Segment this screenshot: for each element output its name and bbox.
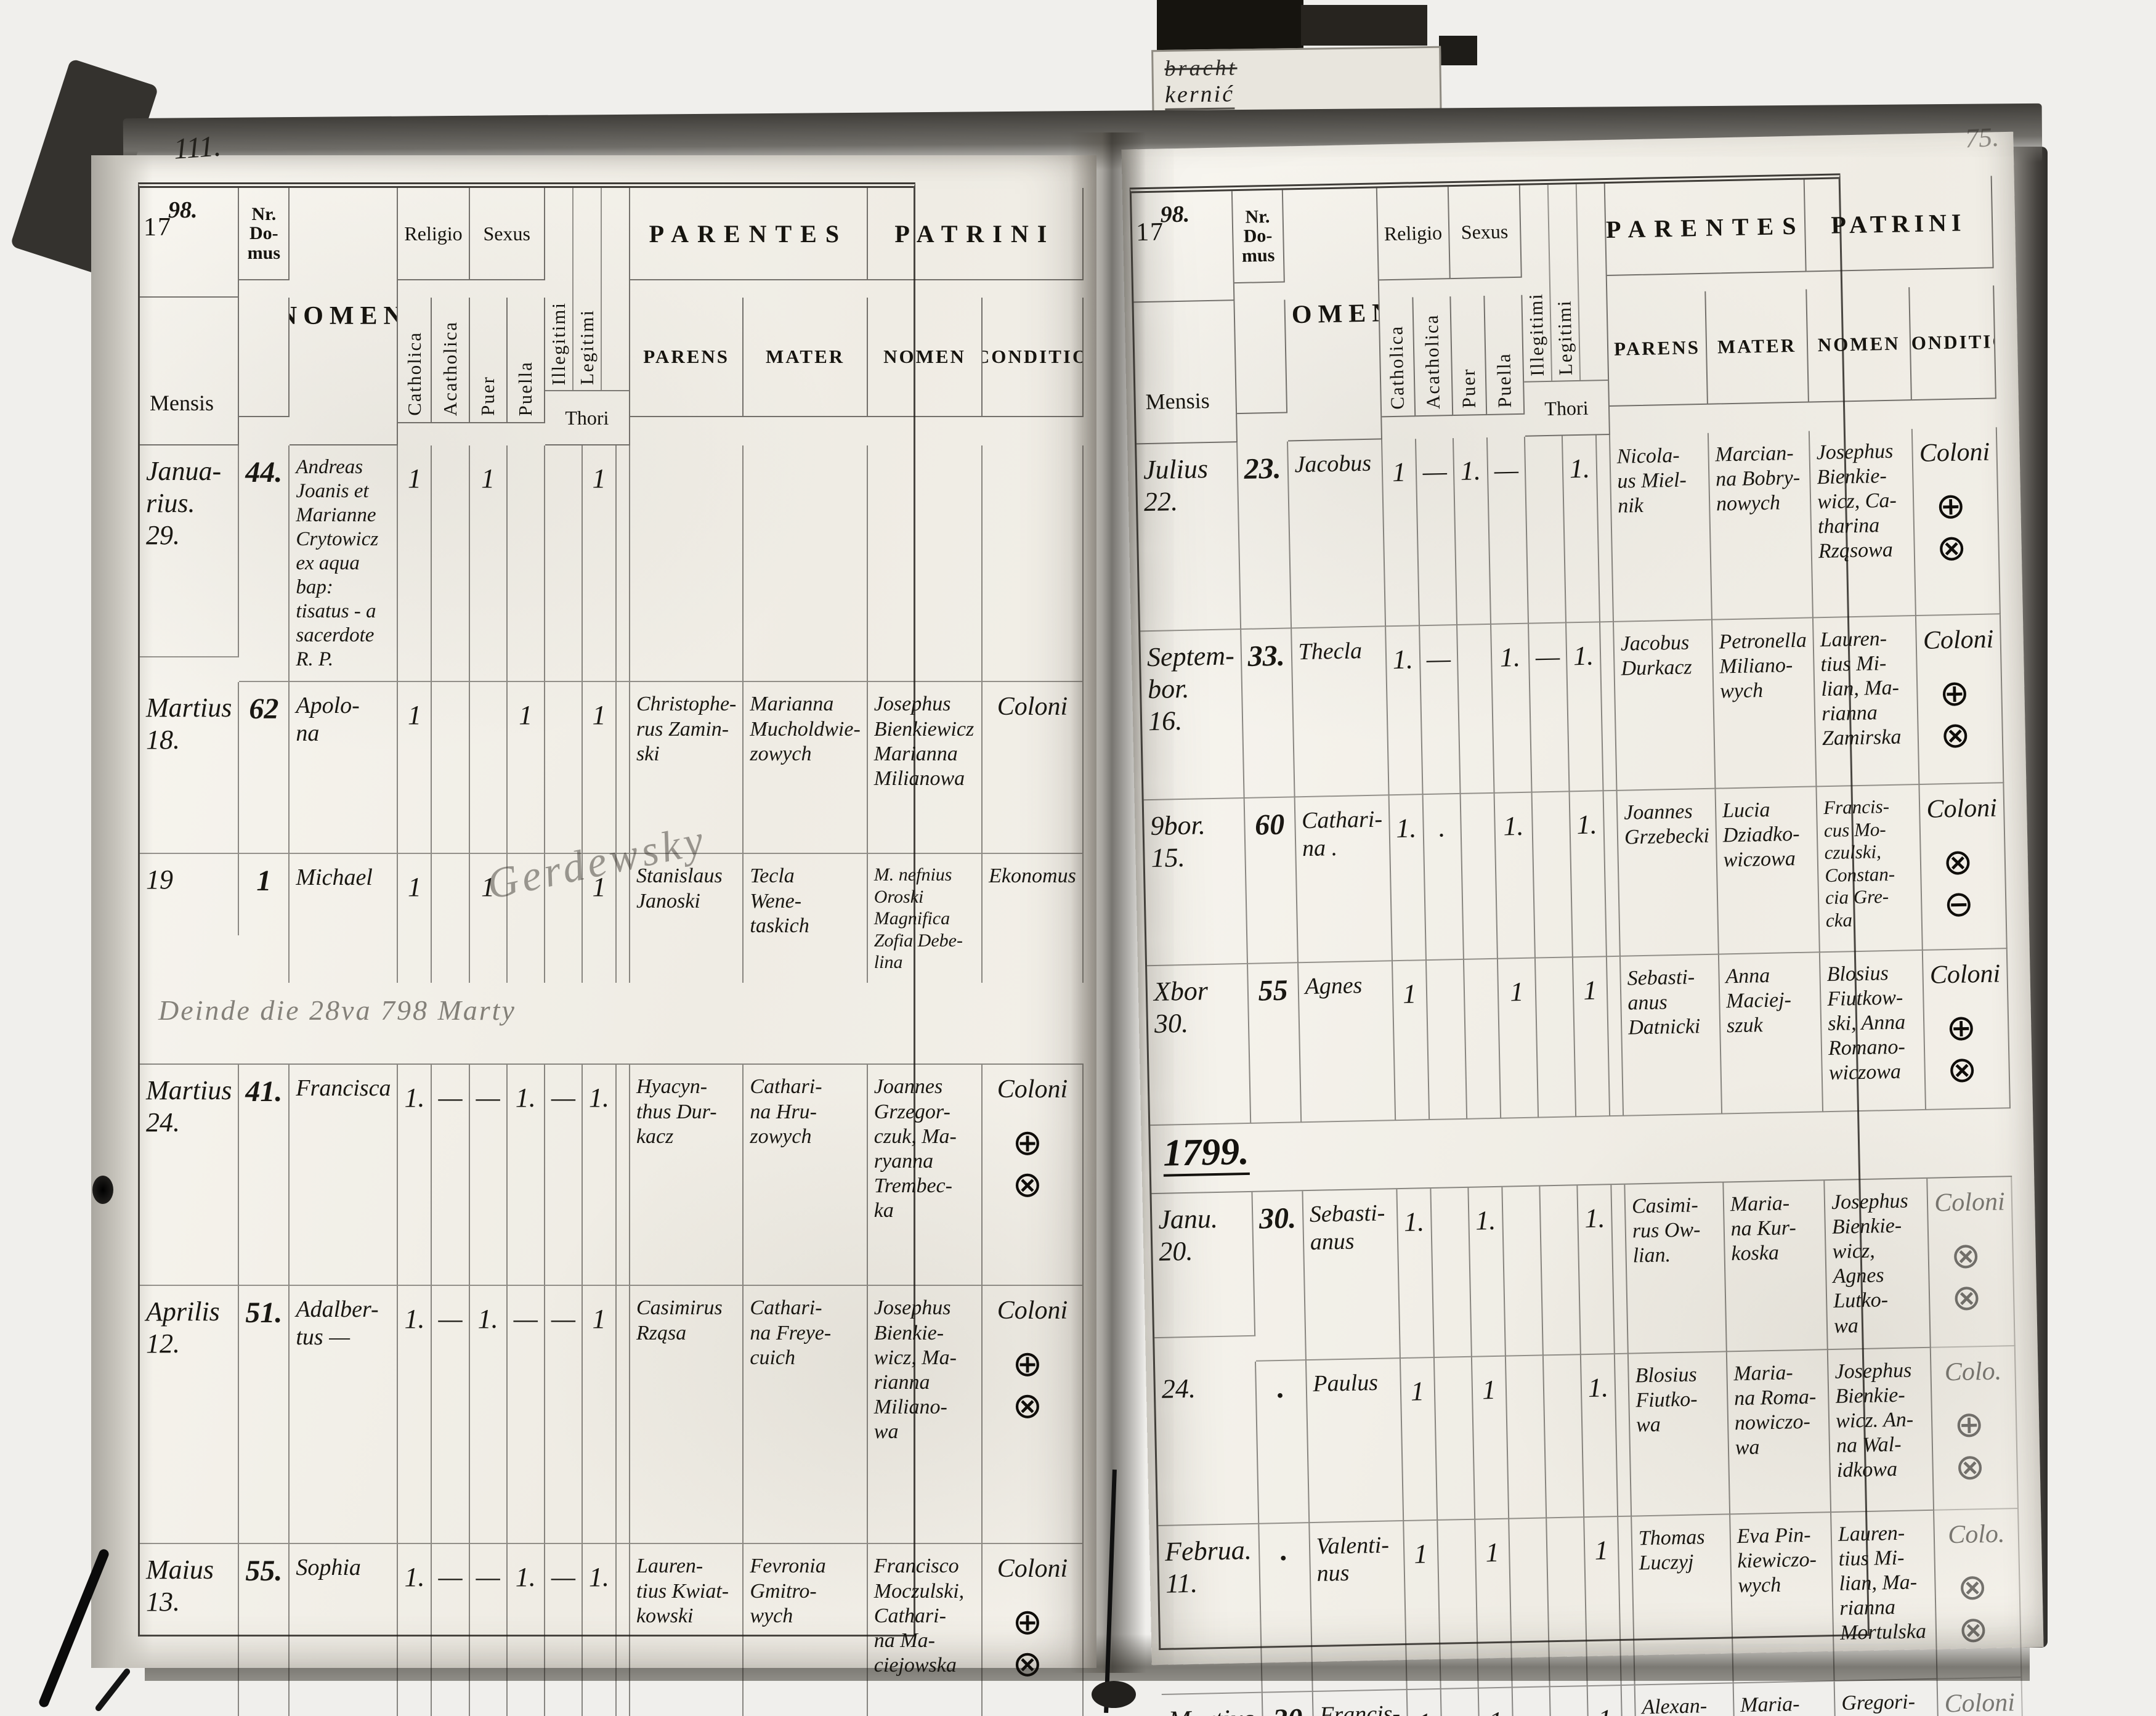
cell-nomen: Michael xyxy=(290,854,398,983)
cell-nomen: Cathari- na . xyxy=(1295,795,1392,963)
header-thori: Thori xyxy=(1524,380,1609,436)
cell-mensis: Julius 22. xyxy=(1137,442,1241,632)
cell-mater: Petronella Miliano- wych xyxy=(1712,618,1817,789)
header-nr-domus: Nr. Do- mus xyxy=(239,188,290,280)
cell-acatholica xyxy=(432,682,469,854)
cell-parens xyxy=(630,445,744,682)
header-illegitimi: Illegitimi xyxy=(545,188,573,390)
witness-marks: ⊗ ⊗ xyxy=(1935,1234,2007,1319)
header-puella: Puella xyxy=(1485,295,1525,415)
cell-conditio: Ekonomus xyxy=(983,854,1084,983)
cell-legitimi: 1. xyxy=(1581,1354,1618,1518)
cell-patrini-nomen: Gregori- us Roma- nowicz, Anna G'Dziadka xyxy=(1835,1679,1942,1716)
cell-catholica: 1 xyxy=(398,445,432,682)
cell-mensis: Xbor 30. xyxy=(1147,964,1251,1126)
cell-spacer xyxy=(617,1286,630,1544)
book-gutter-shadow xyxy=(1071,132,1146,1673)
header-nr-blank xyxy=(1234,299,1287,414)
cell-puer: 1 xyxy=(1475,1519,1512,1688)
cell-catholica: 1. xyxy=(398,1065,432,1286)
cell-parens: Nicola- us Miel- nik xyxy=(1610,433,1712,622)
year-written: 98. xyxy=(168,197,198,224)
header-mater: MATER xyxy=(744,298,867,417)
cell-illegitimi xyxy=(545,445,583,682)
cell-catholica: 1 xyxy=(398,854,432,983)
cell-parens: Jacobus Durkacz xyxy=(1614,620,1716,791)
cell-puer xyxy=(1464,959,1501,1120)
left-register-table: 17 98. Nr. Do- mus NOMEN Religio Sexus I… xyxy=(138,182,912,1629)
tab-note-line2: kernić xyxy=(1165,80,1235,110)
cell-patrini-nomen: M. nefnius Oroski Magnifica Zofia Debe- … xyxy=(868,854,983,983)
cell-nr: 1 xyxy=(239,854,290,983)
header-thori-group: Illegitimi Legitimi Thori xyxy=(1520,184,1610,437)
cell-conditio: Coloni⊕ ⊗ xyxy=(1913,427,2000,616)
right-register-table: 17 98. Nr. Do- mus NOMEN Religio Sexus I… xyxy=(1130,173,1866,1643)
cell-mater: Maria- na Kewa Jozefek xyxy=(1733,1681,1839,1716)
cell-puella: 1 xyxy=(508,682,545,854)
header-puer: Puer xyxy=(470,298,508,423)
cell-nr: 55. xyxy=(239,1544,290,1716)
cell-puella: 1. xyxy=(1491,624,1533,794)
cell-mater: Lucia Dziadko- wiczowa xyxy=(1716,787,1820,954)
header-patrini-nomen: NOMEN xyxy=(1807,287,1912,402)
header-catholica: Catholica xyxy=(1379,297,1416,417)
cell-illegitimi xyxy=(1536,958,1576,1118)
cell-mater: Maria- na Roma- nowiczo- wa xyxy=(1727,1350,1832,1515)
cell-mensis: 9bor. 15. xyxy=(1144,799,1248,966)
cell-puer xyxy=(1457,625,1494,794)
witness-marks: ⊕ ⊗ xyxy=(989,1343,1076,1427)
cell-legitimi: 1 xyxy=(1584,1517,1621,1686)
cell-legitimi: 1. xyxy=(583,1065,617,1286)
cell-catholica: 1. xyxy=(398,1544,432,1716)
cell-legitimi: 1 xyxy=(1573,957,1610,1117)
cell-nomen: Apolo- na xyxy=(290,682,398,854)
cell-legitimi: 1 xyxy=(1588,1686,1626,1716)
cell-catholica: 1 xyxy=(1382,439,1420,627)
cell-legitimi: 1. xyxy=(1570,791,1607,958)
cell-illegitimi: — xyxy=(545,1544,583,1716)
cell-parens: Joannes Grzebecki xyxy=(1618,789,1719,957)
cell-nr: . xyxy=(1259,1523,1313,1693)
header-sexus: Sexus xyxy=(470,188,545,280)
page-number-right: 75. xyxy=(1964,121,2000,155)
cell-mater: Eva Pin- kiewiczo- wych xyxy=(1730,1513,1835,1683)
cell-parens: Lauren- tius Kwiat- kowski xyxy=(630,1544,744,1716)
cell-nomen: Sophia xyxy=(290,1544,398,1716)
cell-catholica: 1. xyxy=(1397,1189,1435,1359)
cell-legitimi: 1 xyxy=(583,445,617,682)
cell-catholica: 1 xyxy=(398,682,432,854)
cell-acatholica: . xyxy=(1423,794,1464,961)
header-thori-spacer xyxy=(602,188,629,390)
cell-mensis: 19 xyxy=(140,854,239,935)
interline-note: Deinde die 28va 798 Marty xyxy=(140,983,1084,1065)
cell-patrini-nomen: Josephus Bienkie- wicz, Agnes Lutko- wa xyxy=(1825,1179,1931,1350)
cell-nr: 62 xyxy=(239,682,290,854)
cell-legitimi: 1. xyxy=(1563,435,1600,623)
cell-puer: 1 xyxy=(470,445,508,682)
cell-spacer xyxy=(617,445,630,682)
cell-patrini-nomen: Josephus Bienkiewicz Marianna Milianowa xyxy=(868,682,983,854)
cell-nomen: Jacobus xyxy=(1288,439,1386,628)
header-thori-group: Illegitimi Legitimi Thori xyxy=(545,188,630,445)
cell-nr: 55 xyxy=(1248,963,1302,1124)
cell-nomen: Francisca xyxy=(290,1065,398,1286)
cell-acatholica: — xyxy=(432,1544,469,1716)
cell-nomen: Andreas Joanis et Marianne Crytowicz ex … xyxy=(290,445,398,682)
cell-nr: . xyxy=(1256,1360,1310,1524)
cell-illegitimi xyxy=(1540,1185,1581,1356)
header-nr-blank xyxy=(239,298,290,417)
cell-mensis: Martius 4 xyxy=(1162,1693,1267,1716)
header-religio: Religio xyxy=(1377,187,1450,280)
cell-mater: Cathari- na Hru- zowych xyxy=(744,1065,867,1286)
cell-nomen: Thecla xyxy=(1292,627,1389,797)
cell-illegitimi xyxy=(1532,792,1573,958)
cell-nr: 60 xyxy=(1244,797,1298,964)
left-page: Gerdewsky 17 98. Nr. Do- mus NOMEN Relig… xyxy=(91,155,1096,1668)
cell-parens: Casimirus Rząsa xyxy=(630,1286,744,1544)
bookmark-tab-dark-2 xyxy=(1301,5,1427,46)
cell-conditio: Coloni⊕ ⊗ xyxy=(983,1286,1084,1544)
cell-puer: — xyxy=(470,1544,508,1716)
cell-mensis: Aprilis 12. xyxy=(140,1286,239,1544)
witness-marks: ⊕ ⊗ xyxy=(1920,484,1992,569)
cell-mater: Tecla Wene- taskich xyxy=(744,854,867,983)
cell-patrini-nomen: Josephus Bienkie- wicz. An- na Wal- idko… xyxy=(1828,1348,1934,1512)
register-scan-photo: bracht kernić 111. 75. Gerdewsky 17 98. … xyxy=(0,0,2156,1716)
cell-catholica: 1 xyxy=(1404,1521,1441,1690)
header-sexus: Sexus xyxy=(1449,185,1522,279)
header-legitimi: Legitimi xyxy=(573,188,602,390)
cell-mater: Maria- na Kur- koska xyxy=(1724,1181,1828,1352)
cell-conditio: Coloni⊗ ⊖ xyxy=(1938,1678,2026,1716)
year-written: 98. xyxy=(1160,201,1189,229)
cell-acatholica: — xyxy=(1416,438,1457,626)
cell-illegitimi: — xyxy=(545,1286,583,1544)
header-thori-spacer xyxy=(1577,184,1608,380)
header-conditio: CONDITIO xyxy=(1910,285,1996,401)
cell-acatholica xyxy=(1435,1357,1475,1520)
header-nomen: NOMEN xyxy=(1283,188,1382,441)
cell-puella: 1. xyxy=(508,1065,545,1286)
cell-puella xyxy=(1506,1356,1547,1519)
header-acatholica: Acatholica xyxy=(1413,296,1453,417)
cell-patrini-nomen: Francisco Moczulski, Cathari- na Ma- cie… xyxy=(868,1544,983,1716)
cell-patrini-nomen: Francis- cus Mo- czulski, Constan- cia G… xyxy=(1817,785,1924,953)
cell-catholica: 1. xyxy=(398,1286,432,1544)
cell-mater: Marcian- na Bobry- nowych xyxy=(1709,431,1814,620)
cell-nomen: Paulus xyxy=(1307,1359,1404,1523)
header-puella: Puella xyxy=(508,298,545,423)
cell-mensis: Martius 24. xyxy=(140,1065,239,1286)
cell-acatholica: — xyxy=(432,1286,469,1544)
cell-legitimi: 1. xyxy=(1566,622,1603,792)
header-puer: Puer xyxy=(1451,296,1487,416)
cell-mater: Marianna Mucholdwie- zowych xyxy=(744,682,867,854)
cell-illegitimi xyxy=(1550,1686,1592,1716)
cell-nomen: Francis- cus xyxy=(1313,1690,1411,1716)
ink-blot xyxy=(92,1176,113,1204)
cell-puella xyxy=(1509,1518,1550,1688)
witness-marks: ⊗ ⊗ xyxy=(1942,1565,2014,1651)
cell-patrini-nomen: Blosius Fiutkow- ski, Anna Romano- wiczo… xyxy=(1820,951,1926,1112)
cell-parens: Hyacyn- thus Dur- kacz xyxy=(630,1065,744,1286)
cell-illegitimi: — xyxy=(545,1065,583,1286)
tab-note-line1: bracht xyxy=(1164,52,1429,81)
binding-thread-knot xyxy=(1092,1681,1136,1708)
cell-patrini-nomen: Joannes Grzegor- czuk, Ma- ryanna Trembe… xyxy=(868,1065,983,1286)
cell-patrini-nomen: Lauren- tius Mi- lian, Ma- rianna Zamirs… xyxy=(1814,616,1920,787)
cell-puer: 1. xyxy=(1469,1187,1506,1357)
witness-marks: ⊕ ⊗ xyxy=(989,1601,1076,1685)
header-acatholica: Acatholica xyxy=(432,298,469,423)
cell-acatholica xyxy=(1427,960,1467,1120)
header-patrini: PATRINI xyxy=(1805,176,1993,272)
cell-parens: Alexan- der Tar- czyndler xyxy=(1635,1683,1738,1716)
cell-spacer xyxy=(617,1065,630,1286)
cell-mensis: Martius 18. xyxy=(140,682,239,854)
right-page: 17 98. Nr. Do- mus NOMEN Religio Sexus I… xyxy=(1121,132,2043,1665)
cell-spacer xyxy=(617,1544,630,1716)
witness-marks: ⊕ ⊗ xyxy=(1924,671,1996,757)
header-illegitimi: Illegitimi xyxy=(1520,185,1552,381)
cell-puella: — xyxy=(508,1286,545,1544)
cell-mensis: Janu. 20. xyxy=(1151,1192,1255,1338)
cell-nr: 33. xyxy=(1241,628,1295,799)
cell-spacer xyxy=(617,682,630,854)
cell-conditio: Colo.⊗ ⊗ xyxy=(1934,1509,2022,1680)
cell-puer: 1. xyxy=(1454,437,1491,625)
cell-puella xyxy=(508,445,545,682)
cell-patrini-nomen: Lauren- tius Mi- lian, Ma- rianna Mortul… xyxy=(1831,1510,1938,1681)
cell-catholica: 1. xyxy=(1389,795,1426,961)
cell-illegitimi xyxy=(545,682,583,854)
cell-patrini-nomen: Josephus Bienkie- wicz, Ca- tharina Rząs… xyxy=(1810,429,1916,618)
header-patrini-nomen: NOMEN xyxy=(868,298,983,417)
margin-pen-stroke-2 xyxy=(94,1667,131,1712)
cell-nr: 23. xyxy=(1238,441,1292,630)
cell-illegitimi: — xyxy=(1529,623,1570,792)
cell-conditio: Coloni xyxy=(983,682,1084,854)
cell-conditio: Colo.⊕ ⊗ xyxy=(1931,1346,2019,1511)
cell-acatholica xyxy=(432,445,469,682)
header-mensis: Mensis xyxy=(1133,301,1237,444)
cell-conditio: Coloni⊕ ⊗ xyxy=(983,1065,1084,1286)
cell-conditio: Coloni⊕ ⊗ xyxy=(1923,949,2011,1110)
cell-parens: Thomas Luczyj xyxy=(1632,1515,1733,1685)
cell-acatholica xyxy=(1438,1519,1479,1689)
cell-puella: — xyxy=(1488,437,1529,625)
cell-illegitimi xyxy=(1547,1518,1588,1687)
cell-puer xyxy=(1461,794,1497,960)
cell-parens: Blosius Fiutko- wa xyxy=(1629,1352,1730,1516)
header-parentes: PARENTES xyxy=(630,188,868,280)
cell-puer xyxy=(470,682,508,854)
cell-conditio xyxy=(983,445,1084,682)
page-number-left: 111. xyxy=(172,129,222,166)
cell-conditio: Coloni⊗ ⊖ xyxy=(1920,783,2008,951)
cell-acatholica: — xyxy=(1420,625,1461,795)
cell-nr: 44. xyxy=(239,445,290,682)
cell-catholica: 1 xyxy=(1393,961,1430,1121)
header-legitimi: Legitimi xyxy=(1549,184,1581,381)
cell-puer: 1 xyxy=(1478,1688,1517,1716)
cell-nomen: Sebasti- anus xyxy=(1303,1189,1400,1360)
cell-mater: Anna Maciej- szuk xyxy=(1719,953,1823,1114)
cell-catholica: 1 xyxy=(1407,1690,1445,1716)
cell-mensis: Februa. 11. xyxy=(1158,1524,1262,1694)
cell-nr: 20 xyxy=(1262,1692,1317,1716)
cell-puella xyxy=(1512,1687,1554,1716)
cell-legitimi: 1 xyxy=(583,1286,617,1544)
cell-acatholica xyxy=(1431,1188,1472,1358)
cell-nr: 51. xyxy=(239,1286,290,1544)
year-header: 17 98. xyxy=(1132,191,1234,303)
cell-catholica: 1. xyxy=(1386,626,1423,795)
witness-marks: ⊕ ⊗ xyxy=(1931,1006,2003,1091)
cell-legitimi: 1. xyxy=(583,1544,617,1716)
year-header: 17 98. xyxy=(140,188,239,298)
cell-puella: 1 xyxy=(1498,959,1539,1119)
cell-nomen: Valenti- nus xyxy=(1310,1521,1407,1692)
cell-nr: 30. xyxy=(1252,1191,1306,1361)
cell-acatholica xyxy=(432,854,469,983)
header-religio: Religio xyxy=(398,188,469,280)
witness-marks: ⊕ ⊗ xyxy=(1939,1402,2011,1488)
witness-marks: ⊕ ⊗ xyxy=(989,1121,1076,1206)
cell-parens: Casimi- rus Ow- lian. xyxy=(1625,1182,1727,1354)
cell-parens: Sebasti- anus Datnicki xyxy=(1621,955,1722,1116)
cell-nr: 41. xyxy=(239,1065,290,1286)
cell-puella xyxy=(1502,1186,1544,1356)
cell-conditio: Coloni⊗ ⊗ xyxy=(1927,1177,2015,1348)
header-parens: PARENS xyxy=(630,298,744,417)
cell-patrini-nomen: Josephus Bienkie- wicz, Ma- rianna Milia… xyxy=(868,1286,983,1544)
cell-acatholica: — xyxy=(432,1065,469,1286)
header-nomen: NOMEN xyxy=(290,188,398,445)
cell-puer: — xyxy=(470,1065,508,1286)
cell-mensis: 24. xyxy=(1155,1361,1259,1526)
cell-mensis: Septem- bor. 16. xyxy=(1140,630,1244,800)
header-conditio: CONDITIO xyxy=(983,298,1084,417)
cell-catholica: 1 xyxy=(1401,1358,1438,1521)
cell-nomen: Adalber- tus — xyxy=(290,1286,398,1544)
header-parentes: PARENTES xyxy=(1605,180,1807,276)
header-mater: MATER xyxy=(1706,289,1809,404)
cell-mensis: Maius 13. xyxy=(140,1544,239,1716)
cell-nomen: Agnes xyxy=(1299,961,1396,1123)
cell-illegitimi xyxy=(1525,436,1566,624)
cell-puer: 1 xyxy=(1472,1356,1509,1519)
cell-patrini-nomen xyxy=(868,445,983,682)
cell-puella: 1. xyxy=(508,1544,545,1716)
cell-mater xyxy=(744,445,867,682)
cell-puella: 1. xyxy=(1494,793,1536,959)
cell-mater: Fevronia Gmitro- wych xyxy=(744,1544,867,1716)
cell-illegitimi xyxy=(1544,1355,1584,1518)
cell-puer: 1. xyxy=(470,1286,508,1544)
header-nr-domus: Nr. Do- mus xyxy=(1233,190,1285,284)
header-parens: PARENS xyxy=(1607,291,1708,407)
witness-marks: ⊗ ⊖ xyxy=(1927,840,2000,925)
header-catholica: Catholica xyxy=(398,298,432,423)
bookmark-tab-nub xyxy=(1439,36,1477,65)
cell-conditio: Coloni⊕ ⊗ xyxy=(983,1544,1084,1716)
cell-acatholica xyxy=(1441,1688,1483,1716)
cell-mensis: Janua- rius. 29. xyxy=(140,445,239,657)
cell-conditio: Coloni⊕ ⊗ xyxy=(1916,614,2004,785)
cell-legitimi: 1 xyxy=(583,682,617,854)
cell-legitimi: 1. xyxy=(1578,1185,1615,1355)
cell-mater: Cathari- na Freye- cuich xyxy=(744,1286,867,1544)
header-patrini: PATRINI xyxy=(868,188,1084,280)
header-thori: Thori xyxy=(545,390,629,444)
header-mensis: Mensis xyxy=(140,298,239,445)
